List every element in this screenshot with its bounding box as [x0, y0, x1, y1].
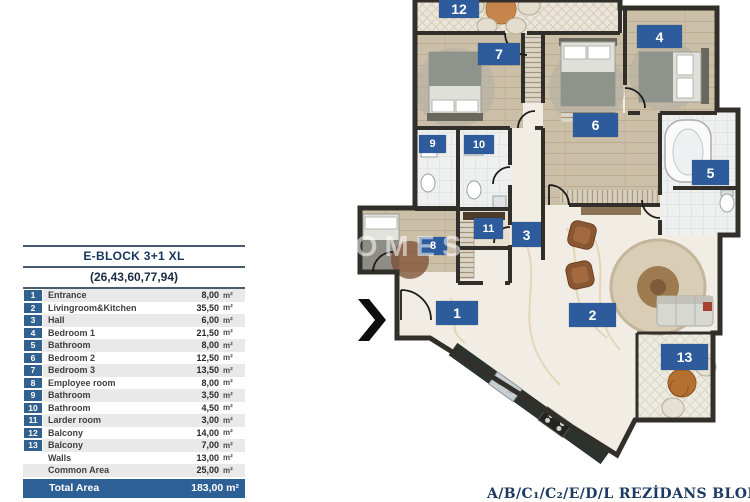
- room-badge-1: 1: [436, 301, 478, 325]
- room-area-value: 8,00: [175, 378, 219, 388]
- room-name: Hall: [43, 315, 175, 325]
- toilet-icon: [720, 190, 734, 212]
- legend-row: 9 Bathroom 3,50 m²: [23, 389, 245, 402]
- room-area-unit: m²: [219, 441, 245, 450]
- room-number-cell: 6: [23, 352, 43, 365]
- room-area-value: 8,00: [175, 290, 219, 300]
- total-value: 183,00 m²: [191, 482, 245, 494]
- room-number-cell: 3: [23, 314, 43, 327]
- room-area-value: 7,00: [175, 440, 219, 450]
- room-area-value: 13,50: [175, 365, 219, 375]
- room-area-unit: m²: [219, 416, 245, 425]
- room-area-unit: m²: [219, 316, 245, 325]
- room-badge-3: 3: [512, 222, 541, 247]
- legend-row: 1 Entrance 8,00 m²: [23, 289, 245, 302]
- legend-row: Walls 13,00 m²: [23, 452, 245, 465]
- room-number-cell: 1: [23, 289, 43, 302]
- legend-row: 6 Bedroom 2 12,50 m²: [23, 352, 245, 365]
- room-badge-9: 9: [419, 135, 446, 153]
- legend-row: Common Area 25,00 m²: [23, 464, 245, 477]
- legend-table: E-BLOCK 3+1 XL (26,43,60,77,94) 1 Entran…: [23, 245, 245, 498]
- room-area-value: 8,00: [175, 340, 219, 350]
- legend-row: 13 Balcony 7,00 m²: [23, 439, 245, 452]
- legend-row: 4 Bedroom 1 21,50 m²: [23, 327, 245, 340]
- page-root: { "legend": { "title": "E-BLOCK 3+1 XL",…: [0, 0, 750, 500]
- room-area-unit: m²: [219, 391, 245, 400]
- room-number-cell: 7: [23, 364, 43, 377]
- room-name: Bedroom 2: [43, 353, 175, 363]
- room-name: Bathroom: [43, 403, 175, 413]
- room-area-value: 3,00: [175, 415, 219, 425]
- room-name: Employee room: [43, 378, 175, 388]
- legend-row: 10 Bathroom 4,50 m²: [23, 402, 245, 415]
- room-area-value: 12,50: [175, 353, 219, 363]
- closet-icon: [523, 34, 543, 102]
- room-name: Bathroom: [43, 340, 175, 350]
- room-badge-4: 4: [637, 25, 682, 48]
- room-name: Balcony: [43, 440, 175, 450]
- total-label: Total Area: [23, 482, 191, 494]
- room-area-value: 6,00: [175, 315, 219, 325]
- legend-row: 3 Hall 6,00 m²: [23, 314, 245, 327]
- legend-title: E-BLOCK 3+1 XL: [23, 247, 245, 266]
- room-number-cell: 8: [23, 377, 43, 390]
- legend-row: 8 Employee room 8,00 m²: [23, 377, 245, 390]
- room-area-value: 21,50: [175, 328, 219, 338]
- room-area-unit: m²: [219, 403, 245, 412]
- room-area-value: 25,00: [175, 465, 219, 475]
- room-area-unit: m²: [219, 428, 245, 437]
- room-name: Entrance: [43, 290, 175, 300]
- room-number-cell: 10: [23, 402, 43, 415]
- room-name: Livingroom&Kitchen: [43, 303, 175, 313]
- legend-row: 12 Balcony 14,00 m²: [23, 427, 245, 440]
- room-area-unit: m²: [219, 328, 245, 337]
- floor-plan-drawing: [355, 0, 750, 500]
- total-row: Total Area 183,00 m²: [23, 479, 245, 498]
- room-area-value: 4,50: [175, 403, 219, 413]
- room-badge-10: 10: [464, 135, 494, 154]
- room-number-cell: 12: [23, 427, 43, 440]
- room-name: Bedroom 1: [43, 328, 175, 338]
- room-area-unit: m²: [219, 378, 245, 387]
- room-area-value: 14,00: [175, 428, 219, 438]
- room-name: Bathroom: [43, 390, 175, 400]
- legend-row: 2 Livingroom&Kitchen 35,50 m²: [23, 302, 245, 315]
- room-area-unit: m²: [219, 453, 245, 462]
- room-badge-5: 5: [692, 160, 729, 185]
- legend-row: 11 Larder room 3,00 m²: [23, 414, 245, 427]
- floor-plan: 1 2 3 4 5 6 7 8 9 10 11 12 13 HOMES: [355, 0, 750, 500]
- room-name: Walls: [43, 453, 175, 463]
- tv-console-icon: [581, 207, 641, 215]
- room-name: Balcony: [43, 428, 175, 438]
- room-number-cell: 5: [23, 339, 43, 352]
- room-number-cell: 11: [23, 414, 43, 427]
- room-number-cell: 4: [23, 327, 43, 340]
- room-area-value: 35,50: [175, 303, 219, 313]
- room-badge-2: 2: [569, 303, 616, 327]
- room-badge-7: 7: [478, 43, 520, 65]
- room-badge-12: 12: [439, 0, 479, 18]
- room-number-cell: [23, 452, 43, 465]
- room-area-value: 13,00: [175, 453, 219, 463]
- room-name: Common Area: [43, 465, 175, 475]
- room-number-cell: 9: [23, 389, 43, 402]
- legend-row: 7 Bedroom 3 13,50 m²: [23, 364, 245, 377]
- legend-rows: 1 Entrance 8,00 m² 2 Livingroom&Kitchen …: [23, 289, 245, 477]
- room-badge-11: 11: [474, 218, 503, 239]
- room-badge-6: 6: [573, 113, 618, 137]
- armchair-icon: [565, 260, 596, 291]
- legend-row: 5 Bathroom 8,00 m²: [23, 339, 245, 352]
- room-number-cell: [23, 464, 43, 477]
- legend-subtitle: (26,43,60,77,94): [23, 268, 245, 287]
- room-name: Bedroom 3: [43, 365, 175, 375]
- entrance-arrow-icon: [358, 299, 386, 341]
- runner-rug-icon: [560, 190, 660, 203]
- sofa-icon: [657, 296, 713, 326]
- room-area-value: 3,50: [175, 390, 219, 400]
- room-number-cell: 13: [23, 439, 43, 452]
- room-number-cell: 2: [23, 302, 43, 315]
- room-badge-13: 13: [661, 344, 708, 370]
- room-area-unit: m²: [219, 291, 245, 300]
- room-area-unit: m²: [219, 353, 245, 362]
- room-area-unit: m²: [219, 466, 245, 475]
- room-badge-8: 8: [419, 237, 447, 255]
- room-area-unit: m²: [219, 366, 245, 375]
- room-area-unit: m²: [219, 303, 245, 312]
- room-name: Larder room: [43, 415, 175, 425]
- room-area-unit: m²: [219, 341, 245, 350]
